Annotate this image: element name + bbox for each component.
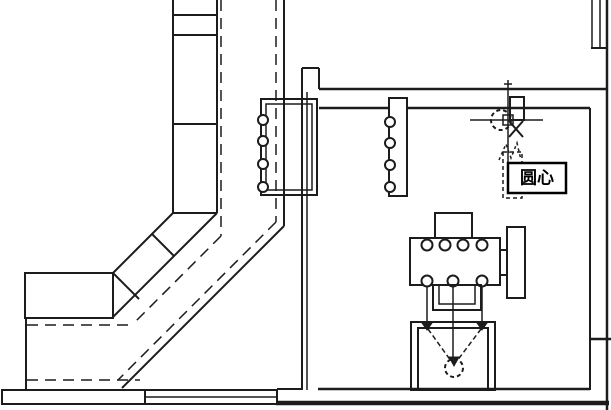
machine-top-block [435,213,472,240]
conveyor-centerline-diagonal [133,236,221,324]
rack-roller-2 [258,136,268,146]
cad-canvas[interactable]: 圆心 [0,0,611,410]
machine-port-top-1 [422,240,433,251]
plate-roller-3 [385,160,395,170]
machine-port-top-4 [477,240,488,251]
rack-roller-3 [258,159,268,169]
tank-funnel-right [457,329,481,361]
rack-inner [266,104,312,190]
belt-end-box [25,273,113,318]
belt-diagonal-rung-1 [152,234,174,256]
plan-geometry [2,0,611,410]
machine-port-bottom-1 [422,276,433,287]
plate-roller-1 [385,117,395,127]
machine-bracket-inner [439,285,475,304]
machine-flange [507,227,525,298]
cad-drawing-area[interactable]: 圆心 [0,0,611,410]
floor-band-left [2,390,145,404]
plate-roller-2 [385,138,395,148]
belt-diagonal-lower [112,213,217,318]
belt-diagonal-upper [113,213,173,273]
rack-roller-4 [258,182,268,192]
track-solid-diagonal [122,226,284,388]
belt-diagonal-rung-2 [113,273,139,299]
rack-outer [261,99,317,195]
plate-roller-4 [385,182,395,192]
tank-funnel-left [428,329,451,361]
machine-bracket-outer [433,285,481,310]
snap-tooltip-label: 圆心 [520,168,554,187]
machine-port-top-2 [440,240,451,251]
machine-port-top-3 [458,240,469,251]
rack-roller-1 [258,115,268,125]
snap-tooltip: 圆心 [508,163,566,193]
